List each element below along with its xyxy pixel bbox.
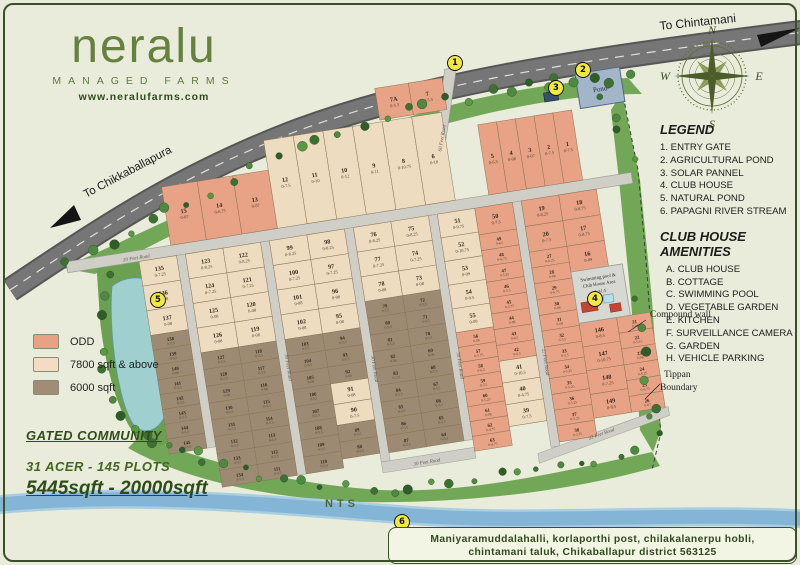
tree-icon [280, 475, 288, 483]
legend-title: LEGEND [660, 122, 798, 137]
amenities-section: CLUB HOUSE AMENITIES A. CLUB HOUSEB. COT… [660, 229, 798, 366]
legend-items: 1. ENTRY GATE2. AGRICULTURAL POND3. SOLA… [660, 142, 798, 219]
tree-icon [208, 193, 214, 199]
plot-7: 70-5.5 [408, 78, 447, 115]
tree-icon [442, 93, 449, 100]
tree-icon [361, 122, 370, 131]
legend-item: 6. PAPAGNI RIVER STREAM [660, 206, 798, 219]
amenity-item: A. CLUB HOUSE [660, 264, 798, 277]
legend-panel: LEGEND 1. ENTRY GATE2. AGRICULTURAL POND… [660, 122, 798, 366]
tree-icon [342, 480, 349, 487]
address-box: Maniyaramuddalahalli, korlaporthi post, … [388, 527, 797, 564]
brand-website: www.neralufarms.com [44, 91, 244, 103]
tree-icon [632, 296, 638, 302]
tree-icon [465, 98, 473, 106]
tree-icon [558, 462, 564, 468]
map-marker-4: 4 [587, 291, 603, 307]
tree-icon [472, 479, 477, 484]
summary-block: GATED COMMUNITY 31 ACER - 145 PLOTS 5445… [26, 428, 208, 500]
amenity-item: D. VEGETABLE GARDEN [660, 302, 798, 315]
acreage-label: 31 ACER - 145 PLOTS [26, 459, 208, 474]
tree-icon [403, 485, 413, 495]
tree-icon [525, 79, 532, 86]
tree-icon [489, 84, 498, 93]
amenity-item: C. SWIMMING POOL [660, 289, 798, 302]
tree-icon [183, 202, 188, 207]
tree-icon [405, 103, 412, 110]
tree-icon [110, 240, 120, 250]
plot-legend-swatch [33, 357, 59, 372]
gated-community-label: GATED COMMUNITY [26, 428, 208, 443]
address-line1: Maniyaramuddalahalli, korlaporthi post, … [430, 533, 754, 546]
chikkaballapura-arrow [50, 205, 81, 228]
tree-icon [417, 99, 427, 109]
tree-icon [626, 70, 635, 79]
amenities-items: A. CLUB HOUSEB. COTTAGEC. SWIMMING POOLD… [660, 264, 798, 366]
svg-text:N: N [707, 23, 717, 37]
tree-icon [107, 271, 114, 278]
tree-icon [219, 459, 228, 468]
tree-icon [604, 78, 614, 88]
tree-icon [246, 163, 252, 169]
brand-tagline: MANAGED FARMS [44, 75, 244, 87]
legend-item: 1. ENTRY GATE [660, 142, 798, 155]
tree-icon [652, 404, 661, 413]
tree-icon [499, 468, 507, 476]
tree-icon [297, 475, 306, 484]
tree-icon [256, 476, 262, 482]
tree-icon [149, 214, 158, 223]
plot-legend-label: 7800 sqft & above [70, 359, 159, 371]
svg-text:E: E [754, 69, 763, 83]
map-marker-1: 1 [447, 55, 463, 71]
tree-icon [317, 485, 322, 490]
brand-block: neralu MANAGED FARMS www.neralufarms.com [44, 22, 244, 103]
plot-7A: 7A0-5.5 [375, 83, 414, 120]
address-line2: chintamani taluk, Chikaballapur district… [468, 546, 716, 559]
tree-icon [385, 116, 391, 122]
tree-icon [159, 203, 169, 213]
tree-icon [60, 258, 68, 266]
brand-name: neralu [44, 22, 244, 72]
tree-icon [276, 153, 283, 160]
tree-icon [507, 87, 517, 97]
svg-text:W: W [660, 69, 671, 83]
tree-icon [97, 310, 107, 320]
tree-icon [641, 347, 651, 357]
amenity-item: E. KITCHEN [660, 315, 798, 328]
tree-icon [633, 156, 639, 162]
tree-icon [444, 479, 453, 488]
plot-legend-row: 7800 sqft & above [33, 357, 159, 372]
amenity-item: B. COTTAGE [660, 277, 798, 290]
plot-legend-label: 6000 sqft [70, 382, 115, 394]
map-marker-2: 2 [575, 62, 591, 78]
plot-color-legend: ODD7800 sqft & above6000 sqft [33, 334, 159, 403]
plot-legend-row: ODD [33, 334, 159, 349]
tree-icon [630, 446, 639, 455]
tree-icon [646, 413, 652, 419]
tree-icon [533, 467, 538, 472]
plot-legend-label: ODD [70, 336, 94, 348]
amenity-item: G. GARDEN [660, 341, 798, 354]
tree-icon [597, 94, 603, 100]
plot-legend-swatch [33, 334, 59, 349]
tree-icon [231, 178, 238, 185]
size-range-label: 5445sqft - 20000sqft [26, 478, 208, 500]
tree-icon [116, 411, 125, 420]
legend-item: 5. NATURAL POND [660, 193, 798, 206]
tree-icon [334, 131, 340, 137]
tree-icon [88, 245, 98, 255]
amenity-item: F. SURVEILLANCE CAMERA [660, 328, 798, 341]
tree-icon [243, 465, 248, 470]
tree-icon [613, 126, 620, 133]
legend-item: 4. CLUB HOUSE [660, 180, 798, 193]
amenity-item: H. VEHICLE PARKING [660, 353, 798, 366]
nts-label: NTS [325, 498, 359, 510]
tree-icon [392, 490, 399, 497]
tree-icon [591, 461, 597, 467]
layout-poster: 150-07140-6.75130-07120-7.5110-10100-129… [0, 0, 800, 565]
tree-icon [579, 461, 584, 466]
tree-icon [428, 479, 434, 485]
tree-icon [640, 376, 649, 385]
tree-icon [657, 430, 663, 436]
tree-icon [100, 292, 109, 301]
tree-icon [569, 77, 579, 87]
tree-icon [128, 231, 134, 237]
amenities-title: CLUB HOUSE AMENITIES [660, 229, 798, 259]
tree-icon [297, 141, 307, 151]
svg-text:Boundary: Boundary [660, 383, 698, 393]
tree-icon [514, 468, 521, 475]
tree-icon [590, 73, 600, 83]
tree-icon [310, 135, 319, 144]
map-marker-5: 5 [150, 292, 166, 308]
legend-item: 2. AGRICULTURAL POND [660, 155, 798, 168]
map-marker-3: 3 [548, 80, 564, 96]
plot-legend-row: 6000 sqft [33, 380, 159, 395]
svg-text:Tippan: Tippan [664, 370, 691, 380]
plot-legend-swatch [33, 380, 59, 395]
tree-icon [612, 114, 620, 122]
legend-item: 3. SOLAR PANNEL [660, 168, 798, 181]
tree-icon [619, 454, 624, 459]
tree-icon [371, 487, 378, 494]
